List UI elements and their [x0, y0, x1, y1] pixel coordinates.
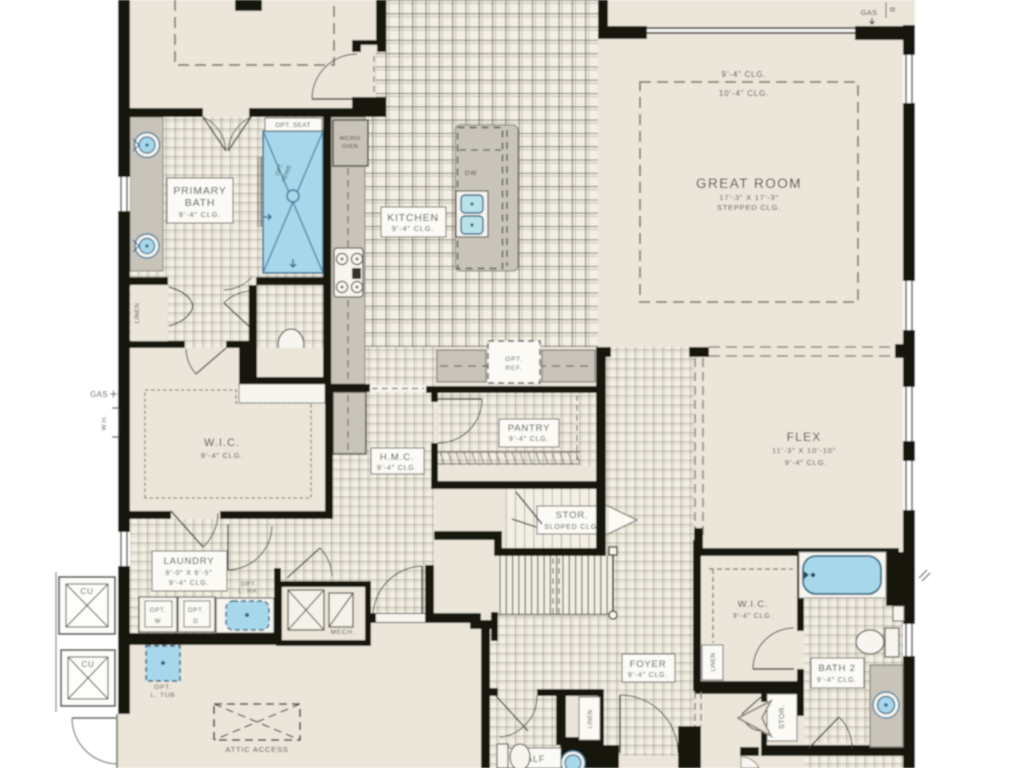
svg-text:9’-4” CLG.: 9’-4” CLG.	[733, 613, 773, 620]
svg-text:L. TUB: L. TUB	[151, 692, 176, 699]
svg-text:PANTRY: PANTRY	[508, 423, 550, 434]
svg-text:CU: CU	[80, 587, 93, 596]
svg-text:W.I.C.: W.I.C.	[204, 437, 240, 449]
svg-text:BATH: BATH	[185, 197, 215, 209]
svg-text:OVEN: OVEN	[342, 144, 358, 150]
svg-text:H.M.C.: H.M.C.	[380, 452, 414, 463]
svg-text:OPT.: OPT.	[241, 582, 258, 588]
svg-text:REF.: REF.	[505, 365, 522, 372]
svg-text:LINEN: LINEN	[134, 303, 141, 324]
svg-text:9’-4” CLG.: 9’-4” CLG.	[179, 210, 222, 219]
svg-text:GAS: GAS	[90, 390, 108, 399]
svg-text:OPT.: OPT.	[188, 608, 205, 614]
svg-text:KITCHEN: KITCHEN	[387, 212, 439, 224]
svg-text:PRIMARY: PRIMARY	[173, 185, 226, 197]
svg-text:D: D	[193, 619, 198, 625]
svg-text:8’-0” X 6’-5”: 8’-0” X 6’-5”	[166, 570, 213, 577]
svg-text:W: W	[155, 619, 161, 625]
svg-text:STEPPED CLG.: STEPPED CLG.	[717, 203, 781, 212]
svg-text:GREAT ROOM: GREAT ROOM	[696, 176, 802, 191]
svg-text:17’-3” X 17’-3”: 17’-3” X 17’-3”	[719, 193, 779, 202]
svg-text:FOYER: FOYER	[630, 659, 667, 670]
svg-text:OPT.: OPT.	[154, 684, 172, 691]
svg-text:W.H.: W.H.	[101, 416, 108, 431]
svg-text:9’-4” CLG.: 9’-4” CLG.	[201, 451, 244, 460]
svg-text:W.I.C.: W.I.C.	[738, 599, 769, 610]
svg-text:OPT. SEAT: OPT. SEAT	[275, 122, 310, 129]
svg-text:STOR.: STOR.	[777, 705, 786, 729]
svg-text:OPT.: OPT.	[505, 356, 523, 363]
svg-text:L. HA.: L. HA.	[238, 589, 259, 595]
svg-text:FLEX: FLEX	[787, 430, 822, 444]
svg-text:GAS: GAS	[861, 8, 878, 17]
svg-text:9’-4” CLG.: 9’-4” CLG.	[628, 672, 668, 679]
svg-text:LINEN: LINEN	[711, 653, 717, 672]
svg-text:9’-4” CLG.: 9’-4” CLG.	[377, 465, 417, 472]
svg-text:9’-4” CLG.: 9’-4” CLG.	[392, 224, 435, 233]
svg-text:ATTIC ACCESS: ATTIC ACCESS	[225, 745, 288, 754]
svg-text:11’-3” X 10’-10”: 11’-3” X 10’-10”	[772, 446, 836, 455]
svg-text:LINEN: LINEN	[588, 710, 594, 729]
svg-text:9’-4” CLG.: 9’-4” CLG.	[785, 458, 828, 467]
svg-text:BATH 2: BATH 2	[818, 663, 855, 674]
svg-text:MECH.: MECH.	[331, 629, 356, 636]
svg-text:9’-4” CLG.: 9’-4” CLG.	[817, 677, 857, 684]
svg-text:10’-4” CLG.: 10’-4” CLG.	[719, 89, 769, 98]
svg-text:9’-4” CLG.: 9’-4” CLG.	[509, 436, 549, 443]
svg-text:SLOPED CLG.: SLOPED CLG.	[544, 524, 599, 531]
svg-text:LAUNDRY: LAUNDRY	[164, 556, 215, 567]
svg-text:DW: DW	[465, 170, 477, 177]
svg-text:CU: CU	[81, 660, 94, 669]
svg-text:STOR.: STOR.	[556, 510, 589, 521]
svg-text:9’-4” CLG.: 9’-4” CLG.	[169, 580, 209, 587]
svg-text:9’-4” CLG.: 9’-4” CLG.	[722, 70, 767, 79]
svg-text:OPT.: OPT.	[150, 608, 167, 614]
svg-text:MICRO/: MICRO/	[340, 136, 361, 142]
svg-text:B: B	[888, 7, 897, 13]
